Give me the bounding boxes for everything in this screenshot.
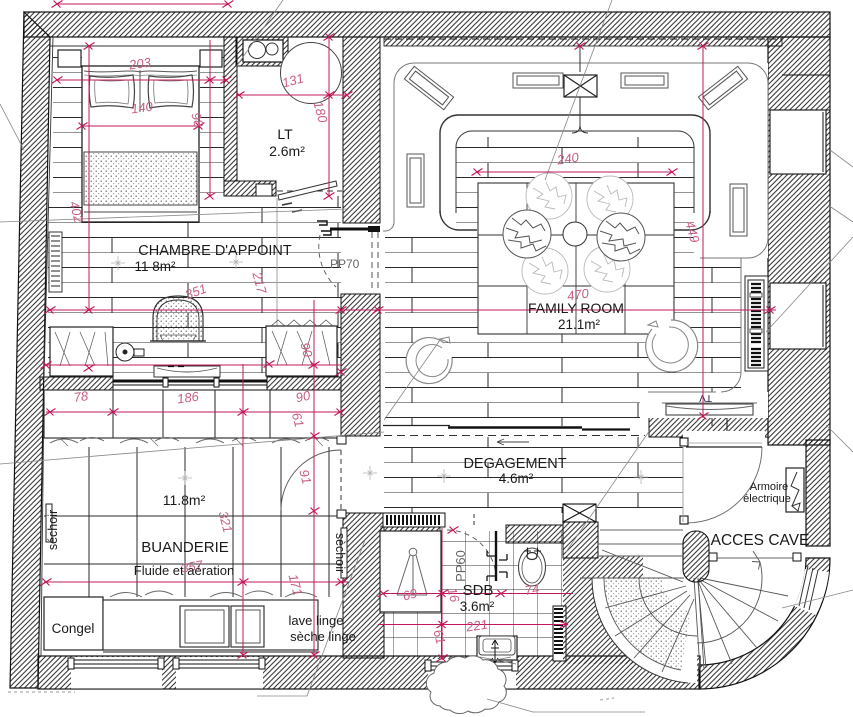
svg-text:4.6m²: 4.6m² [499, 471, 534, 486]
svg-text:LT: LT [277, 126, 293, 142]
svg-text:BUANDERIE: BUANDERIE [141, 539, 229, 556]
svg-text:74: 74 [523, 581, 540, 598]
svg-text:11 8m²: 11 8m² [134, 259, 176, 274]
svg-text:FAMILY ROOM: FAMILY ROOM [528, 300, 624, 316]
svg-text:lave linge: lave linge [289, 613, 344, 628]
svg-text:électrique: électrique [743, 493, 791, 505]
svg-text:21.1m²: 21.1m² [558, 317, 601, 332]
svg-text:PP60: PP60 [453, 550, 468, 582]
svg-text:SDB: SDB [463, 582, 494, 599]
svg-text:séchoir: séchoir [46, 510, 60, 550]
svg-text:ACCES CAVE: ACCES CAVE [711, 532, 810, 549]
svg-text:140: 140 [130, 98, 154, 116]
svg-text:11.8m²: 11.8m² [163, 492, 206, 508]
svg-text:TV: TV [699, 392, 712, 403]
svg-text:Fluide et aération: Fluide et aération [134, 563, 234, 578]
svg-text:3.6m²: 3.6m² [460, 599, 495, 614]
svg-text:Congel: Congel [52, 621, 95, 636]
svg-text:2.6m²: 2.6m² [269, 143, 305, 159]
svg-text:Armoire: Armoire [750, 481, 789, 493]
svg-text:PP70: PP70 [330, 257, 360, 271]
svg-text:CHAMBRE D'APPOINT: CHAMBRE D'APPOINT [138, 243, 292, 259]
svg-text:221: 221 [464, 617, 489, 635]
svg-text:186: 186 [176, 388, 200, 406]
svg-text:sèchoir: sèchoir [333, 533, 347, 573]
svg-text:DEGAGEMENT: DEGAGEMENT [463, 456, 566, 472]
svg-text:78: 78 [73, 388, 90, 405]
svg-text:sèche linge: sèche linge [290, 629, 356, 644]
